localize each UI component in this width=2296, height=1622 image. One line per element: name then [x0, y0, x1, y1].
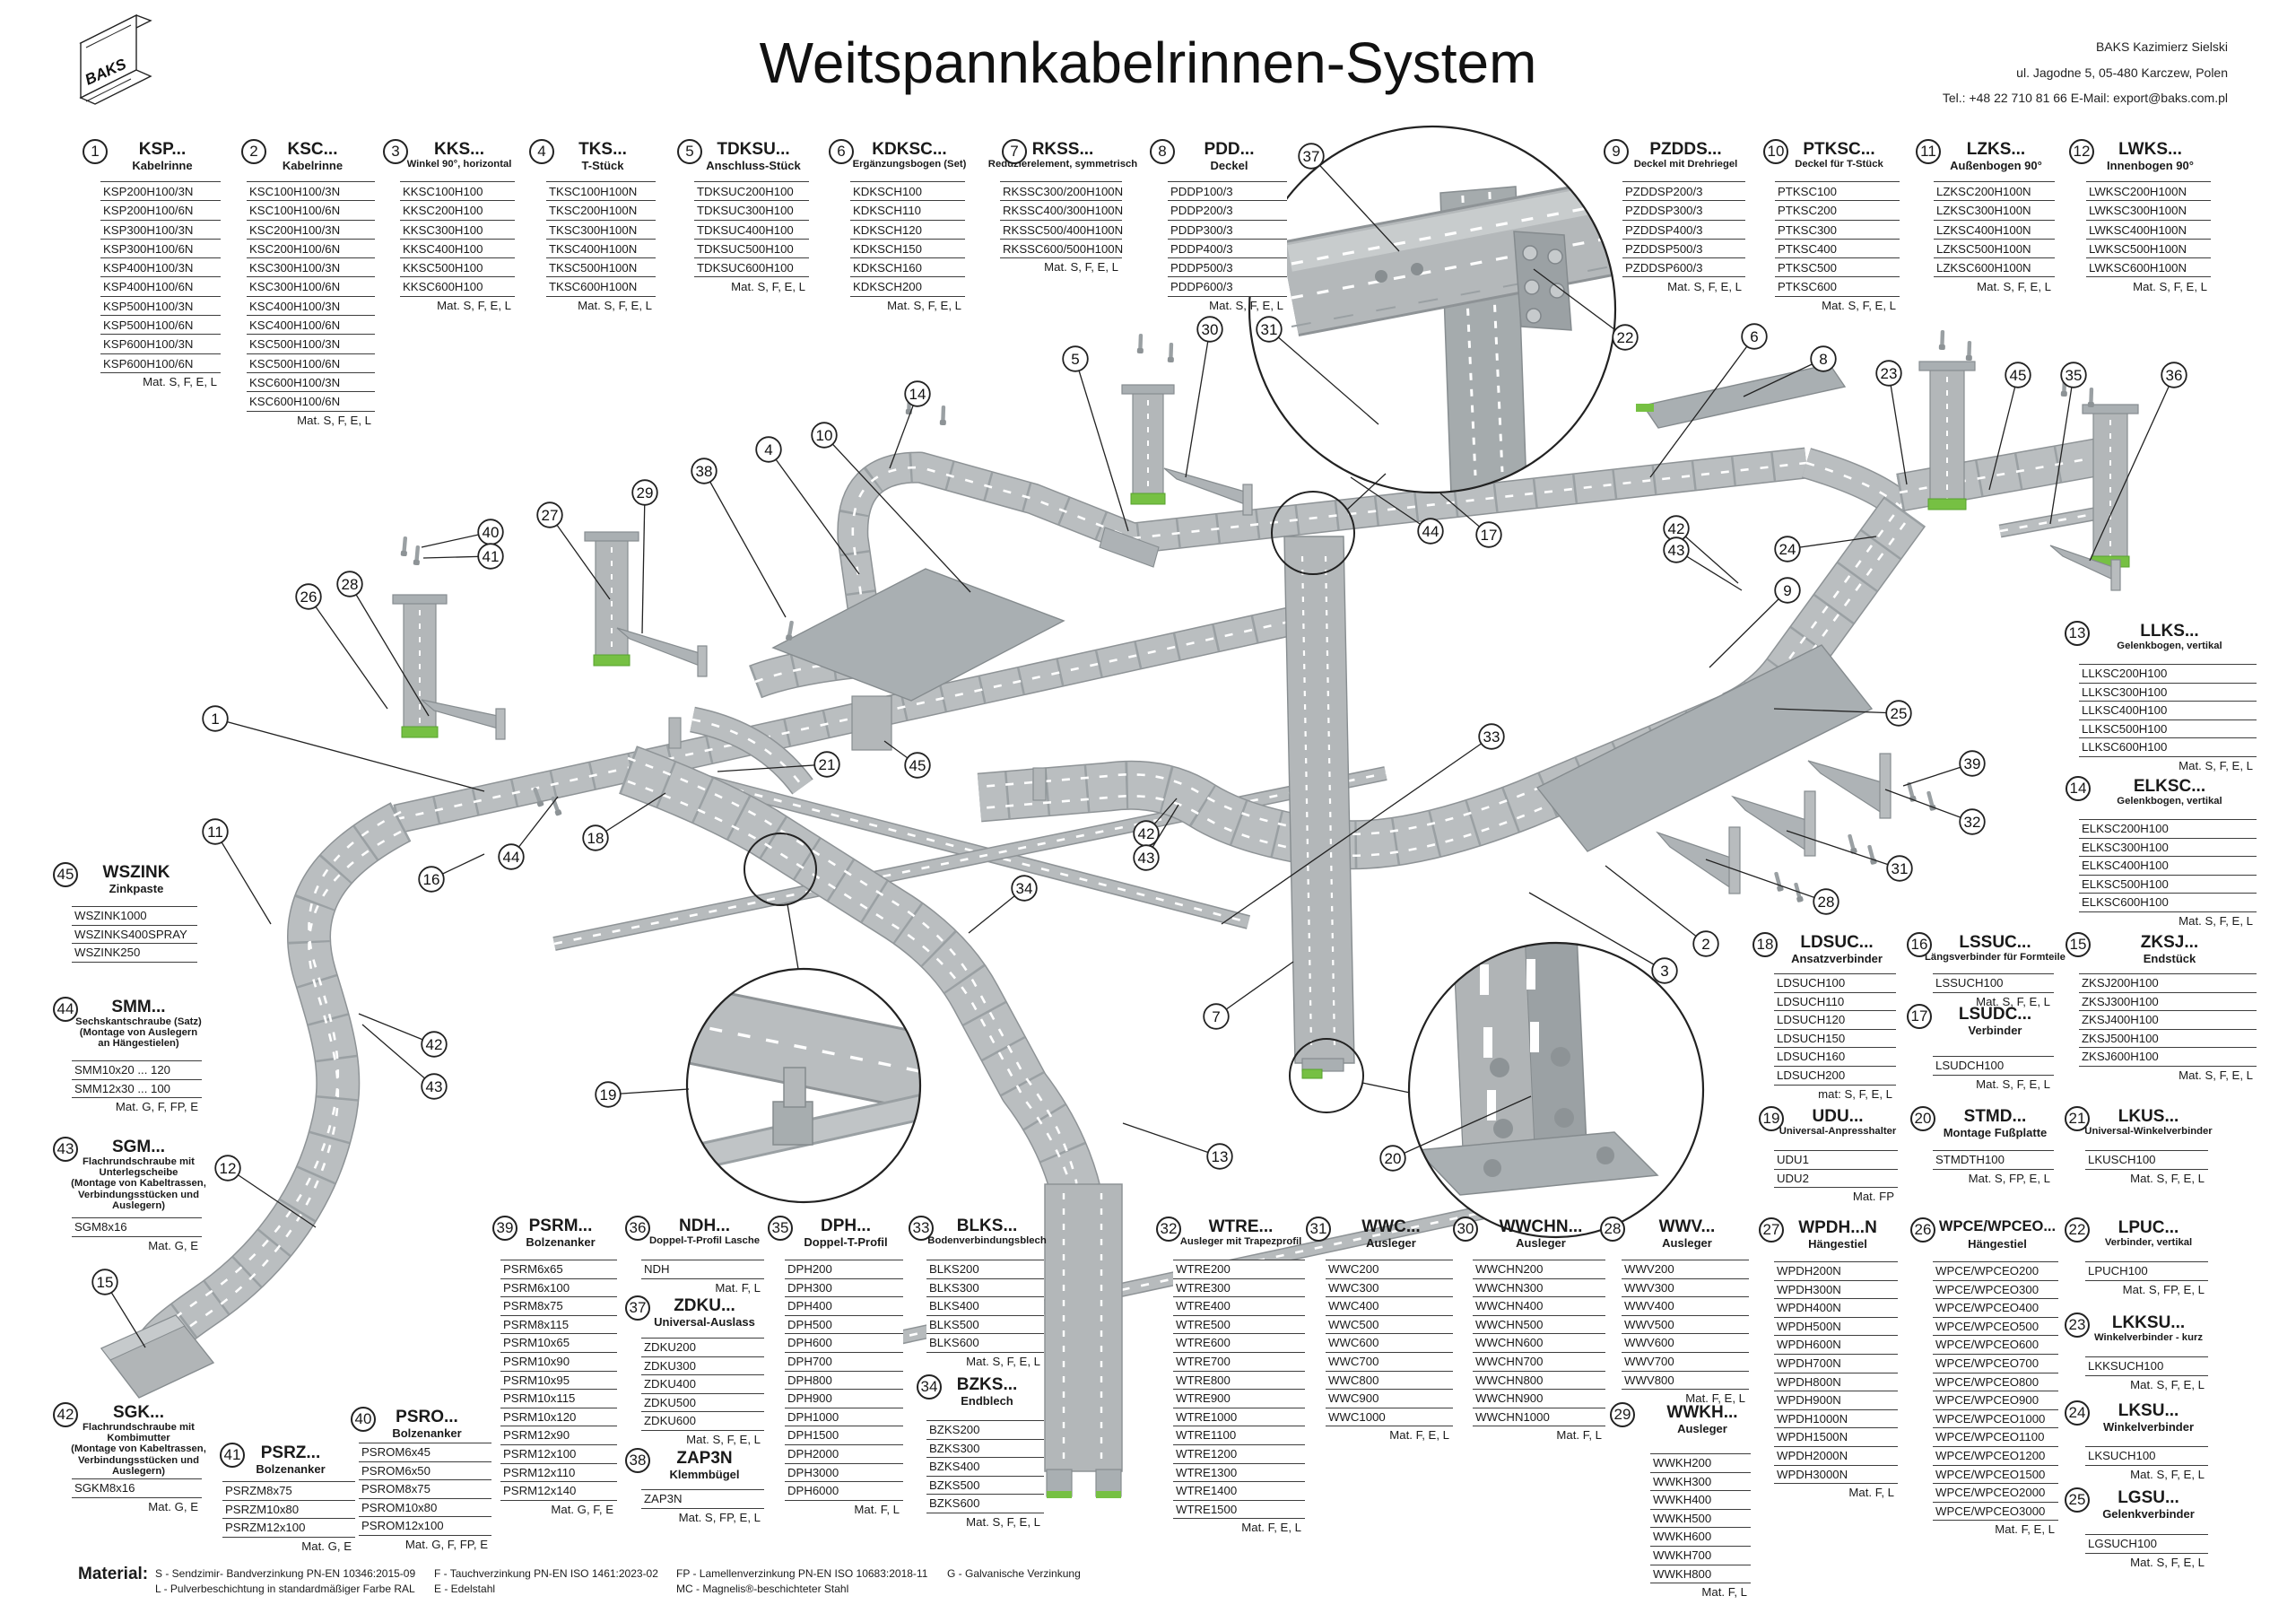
svg-text:25: 25 [1891, 705, 1908, 722]
svg-text:9: 9 [1783, 582, 1791, 599]
svg-text:39: 39 [1964, 755, 1981, 772]
svg-text:31: 31 [1892, 860, 1909, 877]
svg-text:7: 7 [1212, 1008, 1220, 1025]
svg-text:20: 20 [1385, 1150, 1402, 1167]
svg-text:8: 8 [1819, 351, 1827, 368]
svg-text:15: 15 [97, 1274, 114, 1291]
svg-text:41: 41 [483, 548, 500, 565]
svg-text:44: 44 [503, 849, 520, 866]
svg-text:29: 29 [637, 484, 654, 501]
svg-text:14: 14 [909, 386, 926, 403]
svg-text:1: 1 [211, 711, 219, 728]
svg-text:36: 36 [2166, 367, 2183, 384]
svg-text:40: 40 [483, 524, 500, 541]
svg-text:28: 28 [342, 576, 359, 593]
svg-text:45: 45 [909, 757, 926, 774]
svg-text:45: 45 [2010, 367, 2027, 384]
svg-text:28: 28 [1818, 894, 1835, 911]
svg-text:19: 19 [600, 1086, 617, 1103]
svg-text:10: 10 [816, 427, 833, 444]
svg-text:43: 43 [1138, 850, 1155, 867]
svg-text:43: 43 [426, 1078, 443, 1095]
svg-text:11: 11 [207, 824, 223, 841]
svg-text:32: 32 [1964, 814, 1981, 831]
svg-text:42: 42 [1138, 825, 1155, 842]
svg-text:44: 44 [1422, 523, 1439, 540]
svg-text:34: 34 [1016, 880, 1033, 897]
svg-text:42: 42 [426, 1036, 443, 1053]
svg-text:16: 16 [423, 871, 440, 888]
svg-text:21: 21 [819, 756, 836, 773]
svg-text:31: 31 [1261, 321, 1278, 338]
svg-text:22: 22 [1617, 329, 1634, 346]
svg-text:30: 30 [1202, 321, 1219, 338]
svg-text:5: 5 [1071, 351, 1079, 368]
svg-text:24: 24 [1779, 541, 1796, 558]
svg-text:23: 23 [1881, 365, 1898, 382]
svg-text:43: 43 [1668, 542, 1685, 559]
svg-text:35: 35 [2066, 367, 2083, 384]
svg-text:33: 33 [1483, 728, 1500, 746]
svg-text:26: 26 [300, 589, 317, 606]
svg-text:18: 18 [587, 830, 604, 847]
svg-text:17: 17 [1481, 527, 1498, 544]
svg-text:6: 6 [1750, 328, 1758, 345]
svg-text:38: 38 [696, 463, 713, 480]
svg-text:13: 13 [1212, 1148, 1229, 1165]
svg-text:42: 42 [1668, 520, 1685, 537]
svg-text:27: 27 [542, 507, 559, 524]
svg-text:4: 4 [764, 441, 772, 458]
